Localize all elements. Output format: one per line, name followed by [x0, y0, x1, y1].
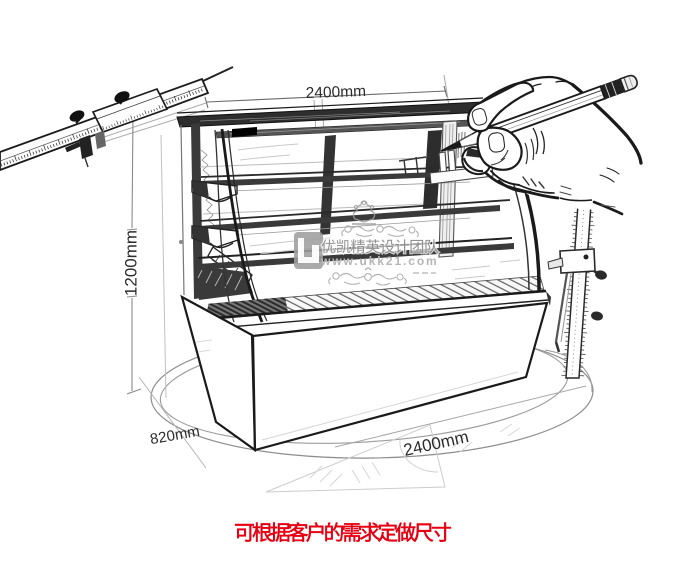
- svg-text:1200mm: 1200mm: [122, 230, 141, 296]
- svg-text:2400mm: 2400mm: [305, 83, 366, 102]
- svg-text:www.ukk21.com: www.ukk21.com: [320, 254, 439, 268]
